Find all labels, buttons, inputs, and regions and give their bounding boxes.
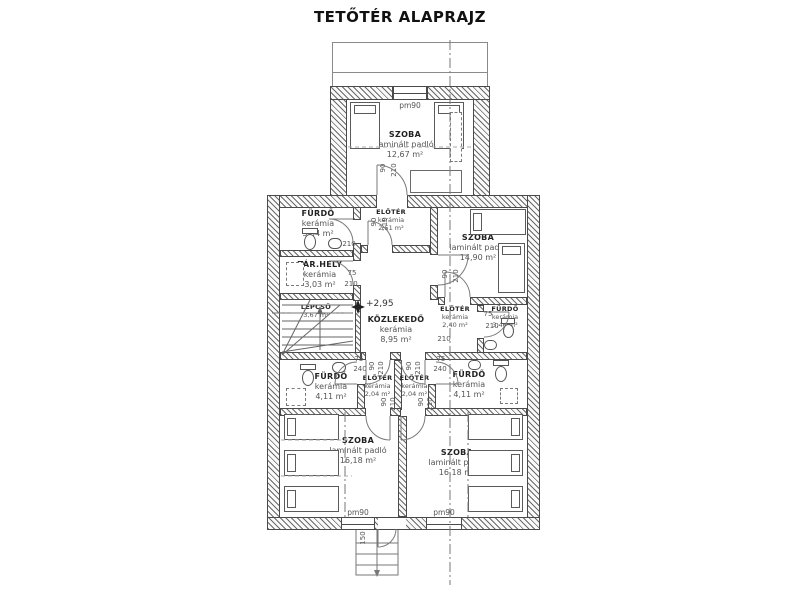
pillow — [287, 454, 296, 472]
dim-label: 210 — [381, 213, 389, 235]
dim-label: 90 — [405, 355, 413, 377]
floor-plan: TETŐTÉR ALAPRAJZ pm90 pm90 pm90 SZOBA la… — [0, 0, 800, 600]
dim-label: 90 — [380, 391, 388, 413]
dim-label: 210 — [481, 322, 503, 330]
dim-label: 210 — [414, 357, 422, 379]
dim-label: 90 — [417, 391, 425, 413]
bed — [284, 414, 339, 440]
bed — [470, 209, 526, 235]
wall — [407, 195, 540, 208]
toilet-icon — [495, 366, 507, 382]
wall — [361, 245, 368, 253]
window — [393, 86, 427, 100]
wall — [267, 195, 280, 530]
pillow — [287, 490, 296, 508]
wardrobe — [450, 112, 462, 162]
wall — [427, 86, 490, 100]
toilet-icon — [302, 370, 314, 386]
sink-icon — [468, 360, 481, 370]
bed — [350, 102, 380, 149]
wall — [438, 297, 445, 305]
dim-label: 210 — [433, 335, 455, 343]
wall — [398, 416, 407, 517]
dim-label: 75 — [341, 269, 363, 277]
room-label-furdo-br: FÜRDŐ kerámia 4,11 m² — [440, 370, 498, 400]
window — [426, 517, 462, 530]
sink-icon — [328, 238, 342, 249]
dim-label: 90 — [379, 157, 387, 179]
dim-label: 210 — [452, 265, 460, 287]
window-dim-label: pm90 — [392, 101, 428, 110]
bed — [468, 414, 523, 440]
wall — [355, 300, 361, 355]
bed — [284, 486, 339, 512]
dim-label: 75 — [477, 310, 499, 318]
dim-label: 75 — [430, 355, 452, 363]
level-mark: +2,95 — [366, 299, 394, 309]
window-dim-label: pm90 — [340, 508, 376, 517]
dim-label: 210 — [377, 357, 385, 379]
dim-label: 90 — [370, 211, 378, 233]
bed — [468, 486, 523, 512]
shower-icon — [500, 388, 518, 404]
wall — [527, 195, 540, 530]
desk — [410, 170, 462, 193]
wall — [280, 250, 353, 257]
wall — [280, 293, 353, 300]
dim-label: 150 — [359, 527, 367, 549]
dim-label: 210 — [340, 280, 362, 288]
pillow — [511, 418, 520, 436]
wall — [330, 86, 347, 196]
cabinet — [286, 262, 304, 286]
wall — [330, 86, 393, 100]
door-opening — [378, 518, 406, 529]
pillow — [511, 490, 520, 508]
window-dim-label: pm90 — [426, 508, 462, 517]
dim-label: 75 — [348, 355, 370, 363]
pillow — [511, 454, 520, 472]
wall — [473, 86, 490, 196]
room-label-eloter-right: ELŐTÉR kerámia 2,40 m² — [434, 305, 476, 329]
bed — [284, 450, 339, 476]
room-label-furdo-tl: FÜRDŐ kerámia 3,54 m² — [285, 209, 351, 239]
dim-label: 210 — [389, 393, 397, 415]
pillow — [287, 418, 296, 436]
dim-label: 90 — [368, 355, 376, 377]
room-label-kozlekedo: KÖZLEKEDŐ kerámia 8,95 m² — [363, 315, 429, 345]
wall — [430, 285, 438, 300]
wall — [470, 297, 527, 305]
shower-icon — [286, 388, 306, 406]
dim-label: 90 — [441, 263, 449, 285]
bed — [468, 450, 523, 476]
wall — [353, 207, 361, 220]
room-label-lepcso: LEPCSŐ 3,67 m² — [288, 303, 344, 319]
window — [341, 517, 375, 530]
dim-label: 240 — [429, 365, 451, 373]
wall — [392, 245, 430, 253]
toilet-icon — [304, 234, 316, 250]
bed — [498, 243, 525, 293]
sink-icon — [332, 362, 346, 373]
dim-label: 210 — [426, 393, 434, 415]
page-title: TETŐTÉR ALAPRAJZ — [0, 8, 800, 26]
pillow — [502, 246, 521, 255]
pillow — [354, 105, 376, 114]
sink-icon — [484, 340, 497, 350]
pillow — [473, 213, 482, 231]
roof-outline — [332, 42, 488, 88]
roof-ridge-line — [332, 72, 488, 73]
toilet-icon — [503, 324, 514, 338]
dim-label: 210 — [390, 159, 398, 181]
wall — [390, 352, 401, 360]
